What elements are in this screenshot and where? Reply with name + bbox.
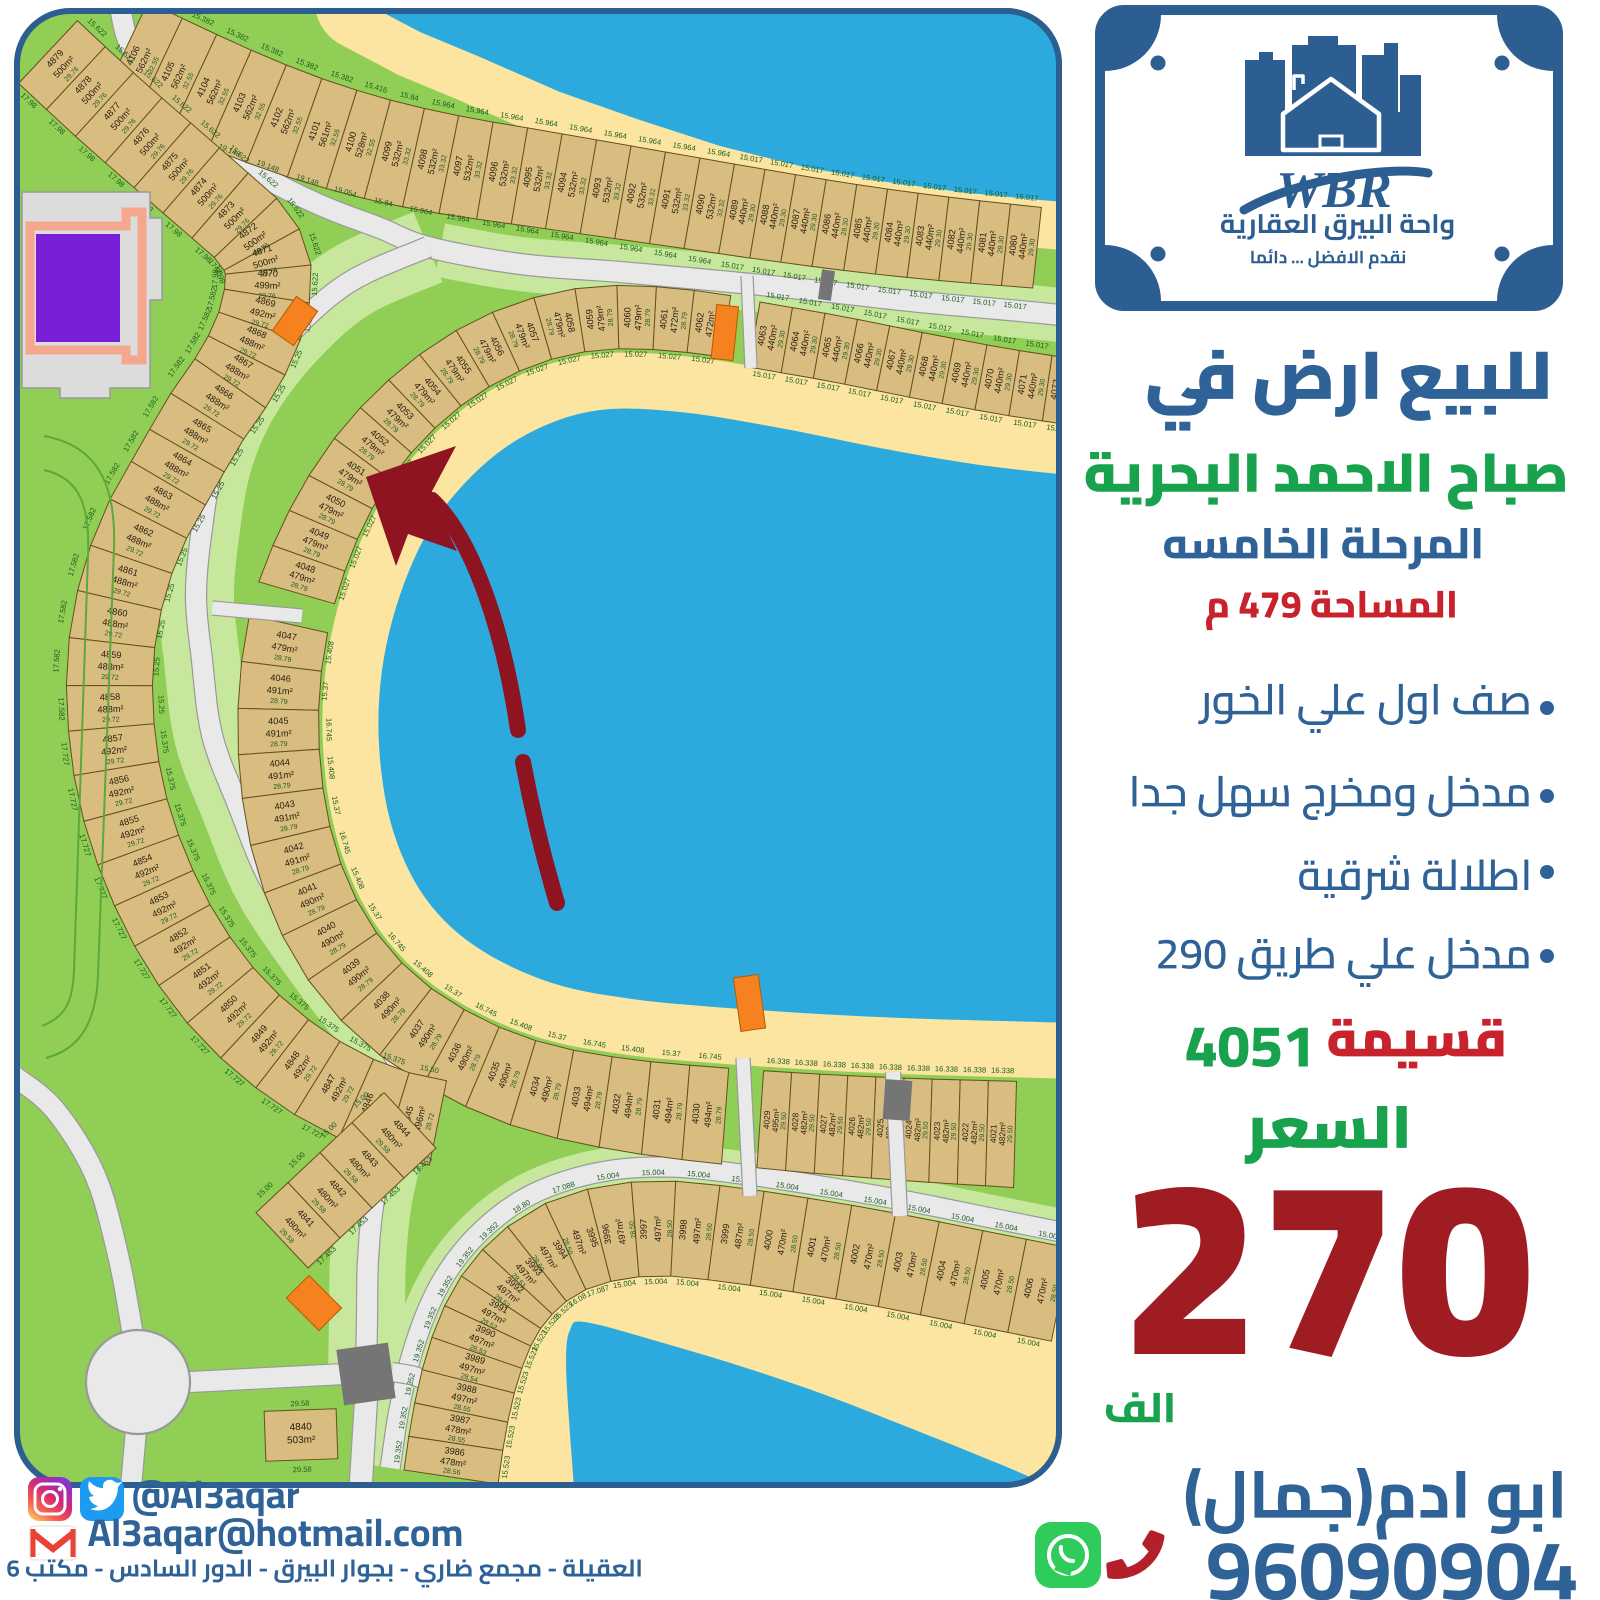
- svg-text:29.50: 29.50: [809, 1114, 817, 1132]
- svg-text:28.79: 28.79: [715, 1106, 723, 1124]
- svg-text:494m²: 494m²: [702, 1101, 714, 1128]
- svg-text:4859: 4859: [101, 649, 122, 660]
- svg-text:17.582: 17.582: [56, 697, 66, 721]
- svg-text:15.004: 15.004: [642, 1168, 665, 1178]
- svg-text:28.79: 28.79: [681, 312, 689, 330]
- svg-text:29.50: 29.50: [780, 1112, 788, 1130]
- svg-text:16.338: 16.338: [963, 1065, 986, 1075]
- svg-text:499m²: 499m²: [254, 280, 280, 291]
- svg-text:28.79: 28.79: [645, 309, 652, 327]
- svg-text:3998: 3998: [677, 1219, 689, 1240]
- svg-text:4060: 4060: [622, 307, 632, 328]
- svg-text:4044: 4044: [269, 757, 290, 769]
- svg-text:482m²: 482m²: [940, 1119, 951, 1143]
- svg-text:29.50: 29.50: [837, 1116, 845, 1134]
- svg-text:3997: 3997: [638, 1219, 648, 1240]
- svg-text:4840: 4840: [289, 1422, 312, 1434]
- svg-text:482m²: 482m²: [912, 1118, 923, 1142]
- svg-text:4046: 4046: [270, 673, 291, 684]
- svg-text:491m²: 491m²: [266, 685, 293, 697]
- svg-text:17.98: 17.98: [210, 269, 220, 288]
- svg-text:4030: 4030: [690, 1103, 702, 1124]
- svg-text:29.50: 29.50: [979, 1124, 986, 1142]
- svg-text:491m²: 491m²: [265, 728, 291, 739]
- svg-text:15.004: 15.004: [644, 1277, 667, 1287]
- svg-text:4858: 4858: [100, 692, 121, 703]
- svg-text:15.25: 15.25: [156, 695, 166, 714]
- svg-text:479m²: 479m²: [633, 305, 643, 331]
- svg-text:15.027: 15.027: [658, 351, 682, 362]
- svg-text:29.72: 29.72: [102, 716, 120, 724]
- svg-text:16.745: 16.745: [698, 1051, 722, 1062]
- svg-text:15.25: 15.25: [151, 657, 161, 677]
- svg-text:29.50: 29.50: [922, 1121, 930, 1139]
- svg-text:15.622: 15.622: [310, 272, 320, 296]
- svg-text:488m²: 488m²: [97, 704, 123, 715]
- svg-text:15.37: 15.37: [661, 1048, 681, 1059]
- svg-text:503m²: 503m²: [287, 1434, 316, 1446]
- svg-text:28.79: 28.79: [270, 741, 288, 748]
- svg-text:4045: 4045: [268, 716, 289, 726]
- svg-text:4059: 4059: [584, 309, 596, 330]
- svg-text:15.37: 15.37: [320, 681, 331, 701]
- svg-text:15.027: 15.027: [624, 349, 647, 358]
- svg-text:16.338: 16.338: [991, 1066, 1014, 1076]
- svg-text:16.338: 16.338: [879, 1062, 903, 1072]
- svg-text:4870: 4870: [257, 268, 278, 279]
- svg-text:29.50: 29.50: [865, 1118, 873, 1136]
- svg-text:4061: 4061: [658, 308, 670, 329]
- svg-text:29.50: 29.50: [951, 1123, 959, 1141]
- svg-text:29.58: 29.58: [293, 1465, 312, 1475]
- svg-text:17.582: 17.582: [51, 649, 61, 673]
- svg-text:482m²: 482m²: [997, 1122, 1008, 1146]
- svg-text:16.338: 16.338: [822, 1059, 846, 1069]
- svg-text:28.79: 28.79: [270, 698, 288, 706]
- svg-text:497m²: 497m²: [653, 1216, 663, 1242]
- svg-text:29.30: 29.30: [1070, 383, 1080, 401]
- svg-text:29.50: 29.50: [1007, 1125, 1014, 1143]
- svg-text:WBR: WBR: [1276, 162, 1392, 219]
- svg-text:28.50: 28.50: [667, 1220, 674, 1238]
- svg-text:482m²: 482m²: [969, 1120, 980, 1144]
- svg-text:16.338: 16.338: [794, 1058, 818, 1068]
- svg-text:16.745: 16.745: [324, 718, 333, 741]
- svg-text:16.338: 16.338: [935, 1064, 958, 1074]
- svg-text:16.338: 16.338: [766, 1056, 790, 1066]
- svg-text:4031: 4031: [651, 1099, 663, 1120]
- svg-text:16.338: 16.338: [850, 1061, 874, 1071]
- svg-text:16.338: 16.338: [907, 1063, 931, 1073]
- svg-text:29.58: 29.58: [290, 1399, 309, 1409]
